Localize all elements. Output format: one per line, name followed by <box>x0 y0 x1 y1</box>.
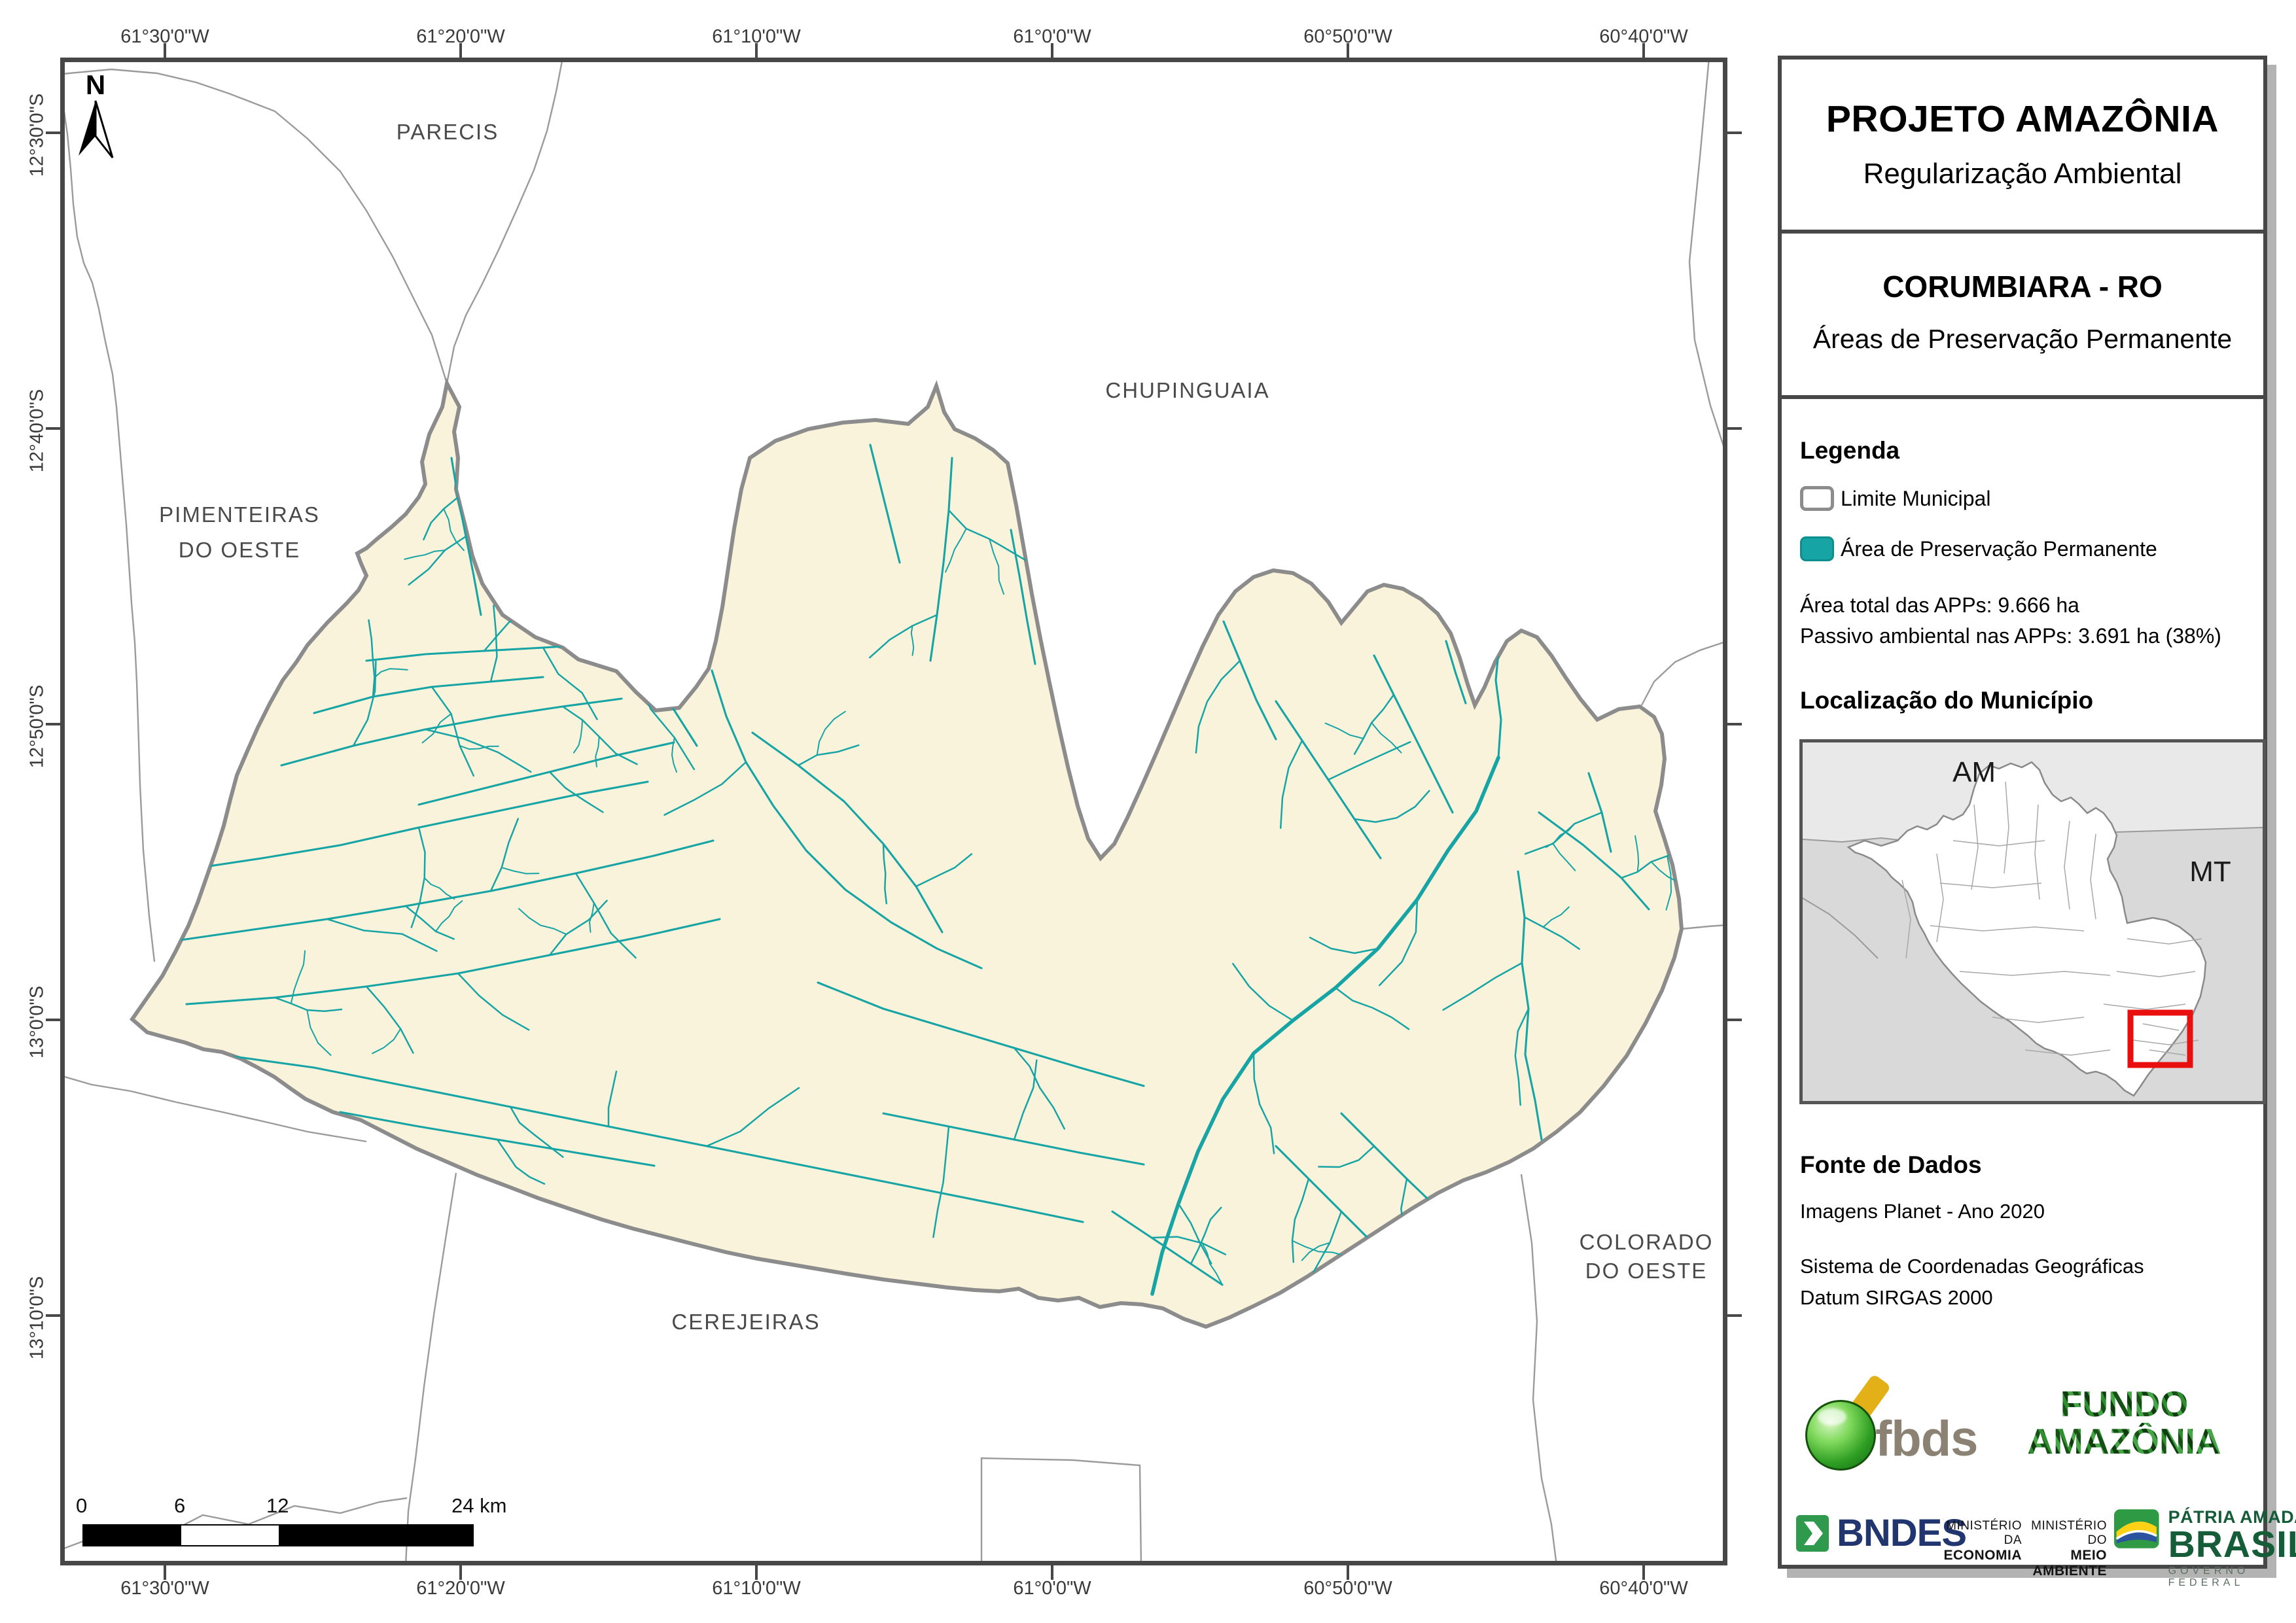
map-theme: Áreas de Preservação Permanente <box>1782 324 2263 355</box>
fbds-wordmark: fbds <box>1875 1410 1977 1467</box>
lon-label: 60°50'0"W <box>1250 26 1446 48</box>
lon-label: 61°20'0"W <box>362 1578 559 1599</box>
datasource-line: Datum SIRGAS 2000 <box>1800 1286 1993 1310</box>
lon-label: 60°50'0"W <box>1250 1578 1446 1599</box>
scale-segment <box>84 1526 181 1545</box>
brasil-label: BRASIL <box>2168 1527 2296 1562</box>
legend-item-app: Área de Preservação Permanente <box>1800 536 2157 561</box>
lat-label: 12°30'0"S <box>27 63 48 207</box>
region-label-colorado: DO OESTE <box>1509 1259 1784 1283</box>
location-heading: Localização do Município <box>1800 687 2093 714</box>
lon-label: 61°30'0"W <box>67 26 263 48</box>
ministry-line: MINISTÉRIO DA <box>1937 1519 2022 1548</box>
map-frame <box>60 58 1727 1565</box>
state-label-mt: MT <box>2189 856 2231 888</box>
fundo-wordmark: FUNDO <box>1989 1386 2259 1423</box>
app-passivo-stat: Passivo ambiental nas APPs: 3.691 ha (38… <box>1800 621 2221 652</box>
lon-label: 61°0'0"W <box>954 1578 1150 1599</box>
north-letter: N <box>86 71 105 100</box>
lat-label: 13°10'0"S <box>27 1246 48 1390</box>
limite-swatch <box>1800 486 1834 511</box>
region-label-parecis: PARECIS <box>310 120 585 145</box>
lon-label: 61°10'0"W <box>658 1578 855 1599</box>
legend-box: Legenda Limite Municipal Área de Preserv… <box>1778 395 2267 1569</box>
scale-segment <box>181 1526 279 1545</box>
datasource-heading: Fonte de Dados <box>1800 1151 1982 1179</box>
page-title: PROJETO AMAZÔNIA <box>1782 97 2263 141</box>
datasource-line: Imagens Planet - Ano 2020 <box>1800 1200 2045 1223</box>
bndes-icon <box>1796 1515 1829 1552</box>
municipality-box: CORUMBIARA - RO Áreas de Preservação Per… <box>1778 230 2267 399</box>
locator-inset-map: AM MT <box>1799 739 2266 1104</box>
lat-label: 12°50'0"S <box>27 655 48 799</box>
fbds-logo: fbds <box>1792 1367 2011 1485</box>
page-subtitle: Regularização Ambiental <box>1782 158 2263 190</box>
ministerio-meio-ambiente-logo: MINISTÉRIO DO MEIO AMBIENTE <box>2012 1519 2107 1579</box>
scale-bar <box>82 1524 474 1546</box>
scale-label: 0 <box>76 1494 87 1518</box>
app-total-stat: Área total das APPs: 9.666 ha <box>1800 590 2079 621</box>
scale-segment <box>279 1526 472 1545</box>
lon-label: 61°30'0"W <box>67 1578 263 1599</box>
ministry-line: ECONOMIA <box>1937 1548 2022 1563</box>
governo-federal-logo: PÁTRIA AMADA BRASIL GOVERNO FEDERAL <box>2114 1507 2296 1589</box>
scale-label: 12 <box>266 1494 289 1518</box>
lat-label: 12°40'0"S <box>27 359 48 503</box>
lon-label: 60°40'0"W <box>1545 1578 1742 1599</box>
datasource-line: Sistema de Coordenadas Geográficas <box>1800 1255 2144 1278</box>
governo-federal-label: GOVERNO FEDERAL <box>2168 1565 2296 1589</box>
region-label-pimenteiras: PIMENTEIRAS <box>102 502 377 527</box>
region-label-cerejeiras: CEREJEIRAS <box>609 1310 883 1335</box>
fbds-sphere-icon <box>1805 1400 1876 1471</box>
fundo-wordmark: AMAZÔNIA <box>1989 1423 2259 1460</box>
lon-label: 60°40'0"W <box>1545 26 1742 48</box>
lon-label: 61°20'0"W <box>362 26 559 48</box>
scale-label: 6 <box>174 1494 185 1518</box>
legend-item-label: Limite Municipal <box>1841 487 1990 511</box>
region-label-pimenteiras: DO OESTE <box>102 538 377 563</box>
lon-label: 61°0'0"W <box>954 26 1150 48</box>
ministry-line: MINISTÉRIO DO <box>2012 1519 2107 1548</box>
lon-label: 61°10'0"W <box>658 26 855 48</box>
ministerio-economia-logo: MINISTÉRIO DA ECONOMIA <box>1937 1519 2022 1563</box>
north-arrow: N <box>68 71 127 169</box>
region-label-colorado: COLORADO <box>1509 1230 1784 1255</box>
region-label-chupinguaia: CHUPINGUAIA <box>1050 378 1325 403</box>
state-label-am: AM <box>1952 756 1996 788</box>
ministry-line: MEIO AMBIENTE <box>2012 1548 2107 1579</box>
fundo-amazonia-logo: FUNDO AMAZÔNIA <box>1989 1386 2259 1460</box>
legend-heading: Legenda <box>1800 437 1899 464</box>
title-box: PROJETO AMAZÔNIA Regularização Ambiental <box>1778 56 2267 234</box>
app-swatch <box>1800 536 1834 561</box>
legend-item-limite: Limite Municipal <box>1800 486 1990 511</box>
legend-item-label: Área de Preservação Permanente <box>1841 537 2157 561</box>
municipality-name: CORUMBIARA - RO <box>1782 269 2263 304</box>
scale-label: 24 km <box>451 1494 506 1518</box>
brazil-flag-icon <box>2114 1507 2159 1550</box>
lat-label: 13°0'0"S <box>27 951 48 1094</box>
layout-panel: PROJETO AMAZÔNIA Regularização Ambiental… <box>1778 56 2267 1569</box>
